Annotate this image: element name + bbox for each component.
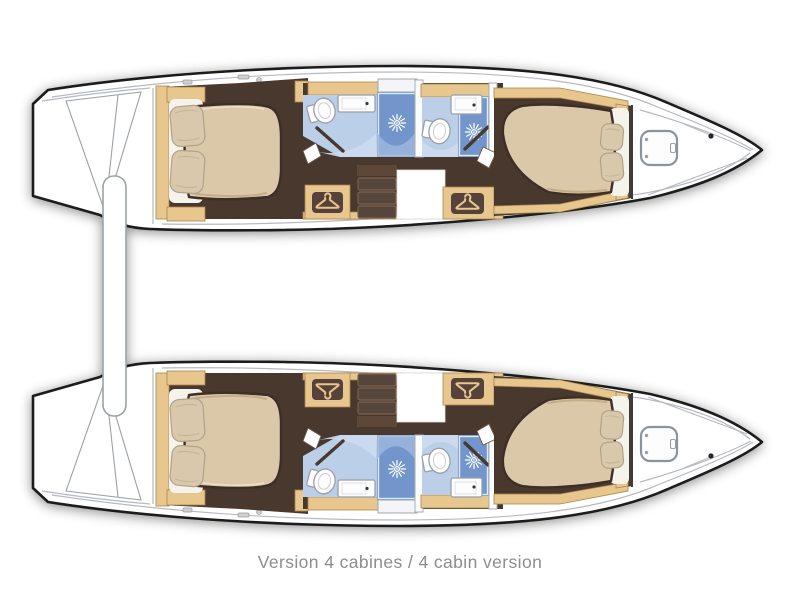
caption: Version 4 cabines / 4 cabin version	[0, 552, 800, 573]
floor-plan-canvas	[0, 0, 800, 599]
stern-crossbeam-pole	[103, 176, 126, 416]
bottom-hull	[33, 362, 762, 526]
floor-plan-page: Version 4 cabines / 4 cabin version	[0, 0, 800, 599]
top-hull	[33, 66, 762, 230]
